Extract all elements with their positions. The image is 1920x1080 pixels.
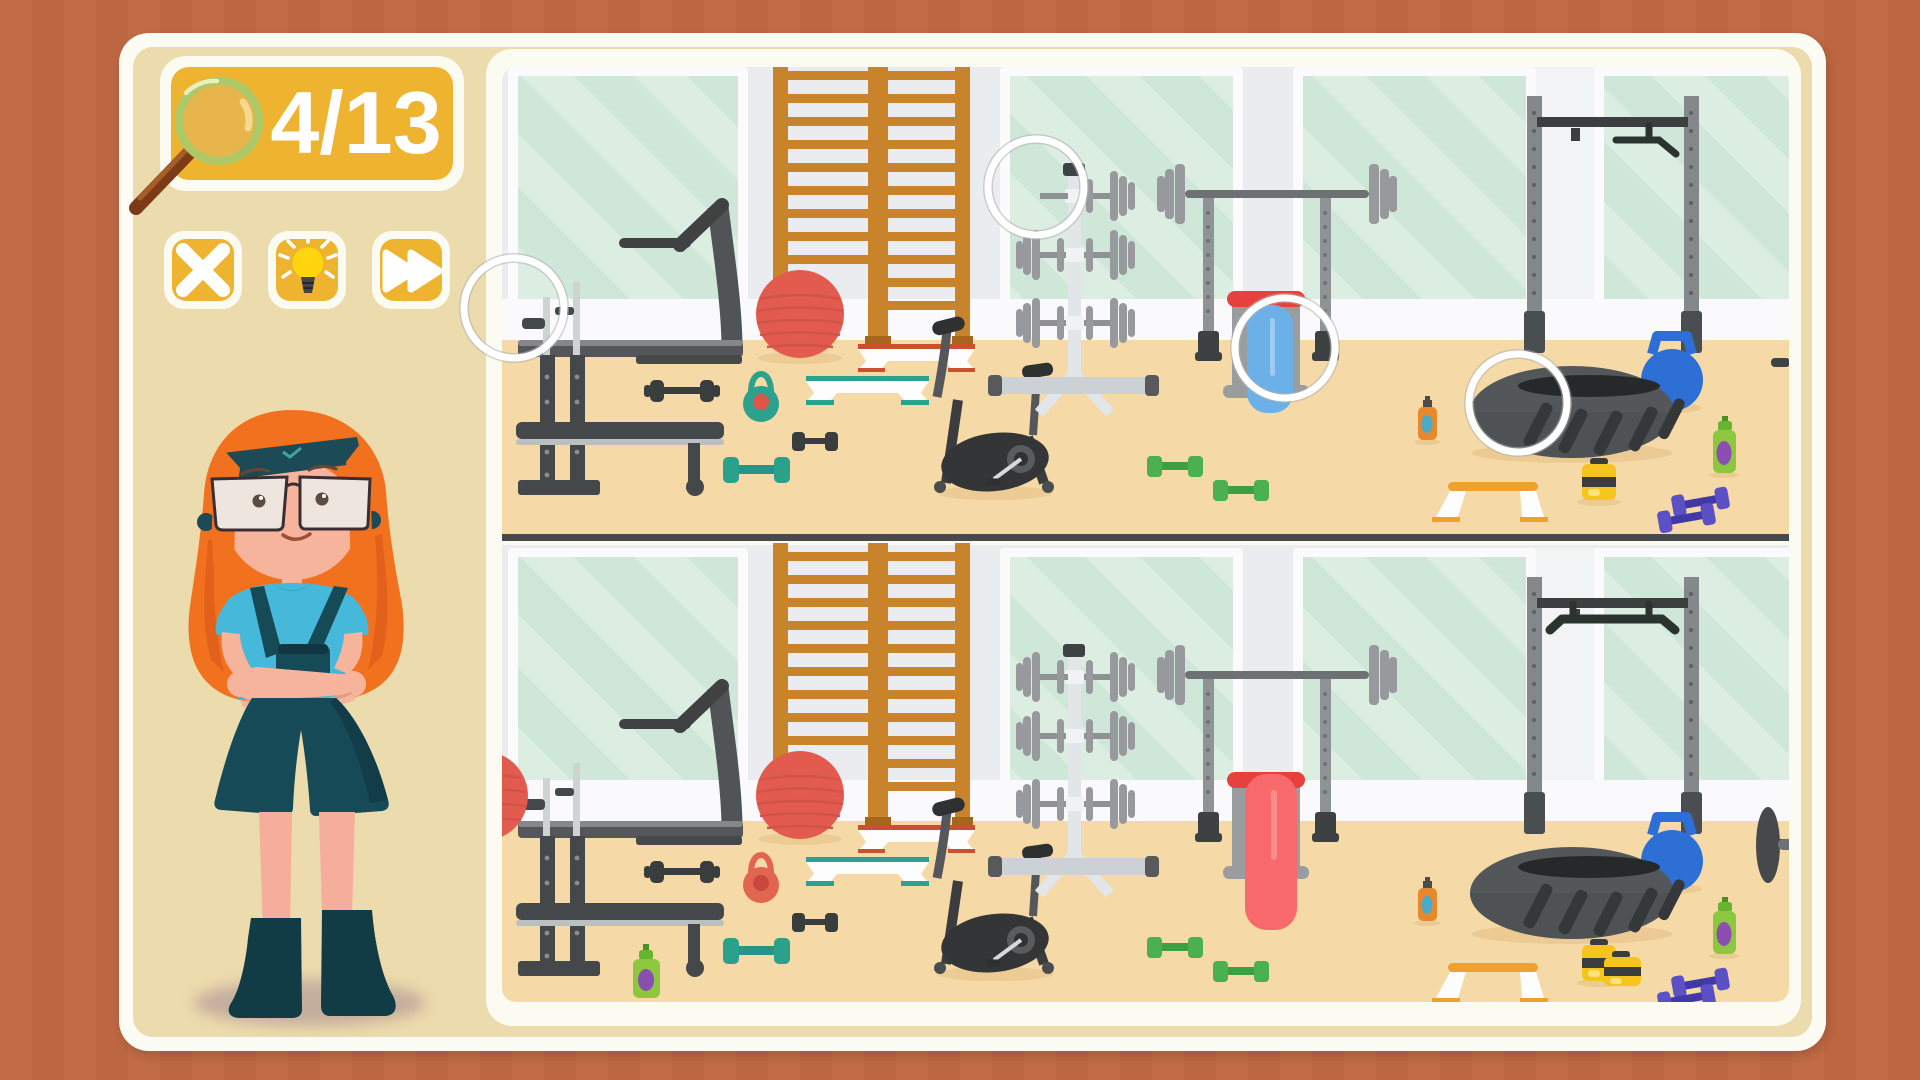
- svg-text:4/13: 4/13: [270, 73, 441, 172]
